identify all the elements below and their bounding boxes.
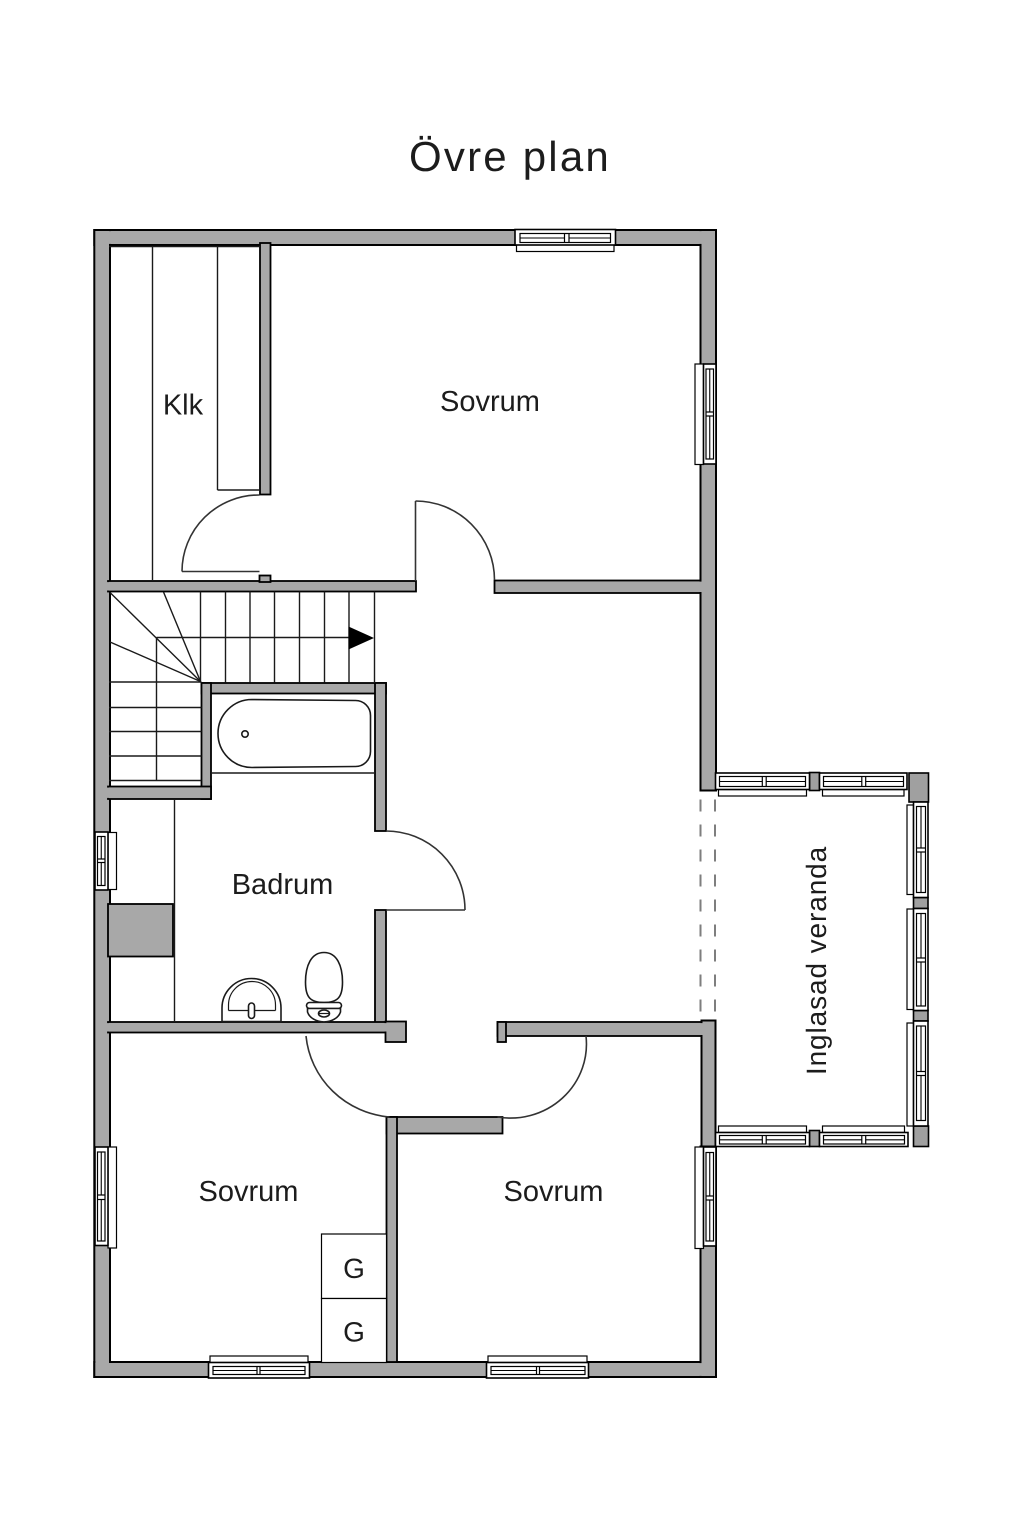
svg-text:Sovrum: Sovrum <box>504 1176 604 1208</box>
svg-text:Klk: Klk <box>163 390 204 422</box>
svg-text:Sovrum: Sovrum <box>440 386 540 418</box>
svg-text:Övre plan: Övre plan <box>409 133 611 180</box>
svg-text:G: G <box>343 1253 365 1284</box>
svg-text:Inglasad veranda: Inglasad veranda <box>801 846 832 1075</box>
svg-text:G: G <box>343 1317 365 1348</box>
svg-text:Badrum: Badrum <box>232 869 334 901</box>
svg-text:Sovrum: Sovrum <box>199 1176 299 1208</box>
